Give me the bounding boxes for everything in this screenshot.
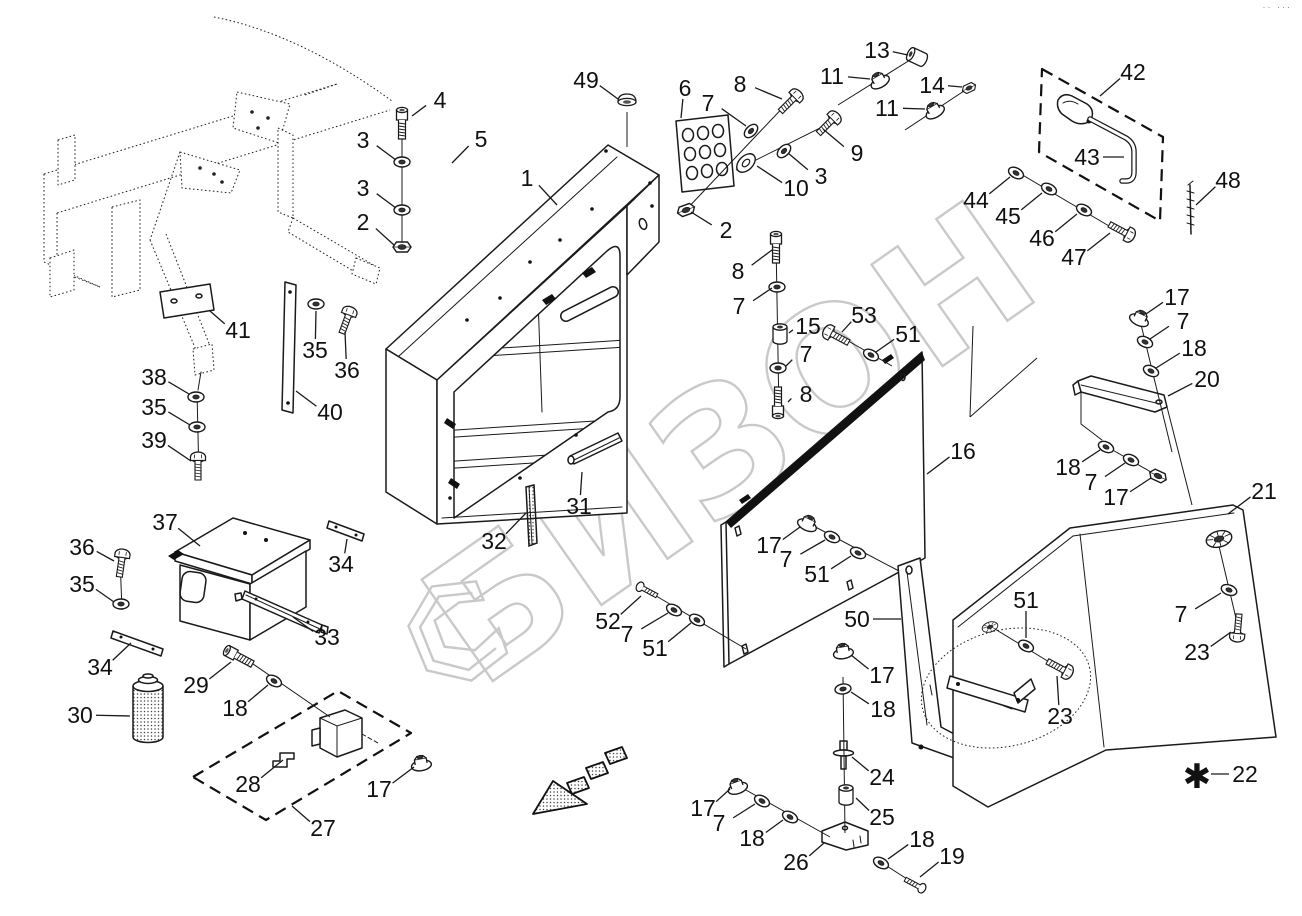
callout-18: 18 [222, 695, 248, 721]
leader-line [668, 623, 691, 642]
callout-53: 53 [851, 302, 877, 328]
leader-line [412, 105, 426, 116]
callout-7: 7 [702, 90, 715, 116]
leader-line [716, 789, 730, 802]
callout-21: 21 [1251, 478, 1277, 504]
leader-line [1150, 326, 1169, 339]
callout-7: 7 [780, 546, 793, 572]
flange-nut-icon [866, 68, 891, 91]
callout-22: 22 [1232, 761, 1258, 787]
leader-line [893, 52, 908, 55]
callout-8: 8 [734, 71, 747, 97]
callout-40: 40 [317, 399, 343, 425]
leader-line [452, 146, 469, 163]
leader-line [1168, 383, 1192, 396]
sealant-cartridge [133, 674, 163, 743]
washer-icon [775, 142, 793, 160]
callout-36: 36 [334, 357, 360, 383]
flange-nut-icon [1128, 307, 1153, 329]
leader-line [315, 311, 316, 339]
bolt-icon [771, 231, 782, 263]
callout-13: 13 [864, 37, 890, 63]
callout-26: 26 [783, 849, 809, 875]
spacer-icon [905, 46, 929, 67]
callout-17: 17 [366, 776, 392, 802]
callout-51: 51 [1013, 587, 1039, 613]
screw-icon [191, 452, 206, 480]
footnote-star: ✱ [1183, 757, 1212, 797]
washer-icon [265, 673, 284, 689]
callout-11: 11 [820, 63, 844, 89]
leader-line [1087, 233, 1110, 251]
washer-icon [394, 205, 410, 215]
callout-30: 30 [67, 702, 93, 728]
leader-line [927, 457, 950, 474]
callout-2: 2 [720, 217, 733, 243]
nut-icon [1148, 468, 1169, 485]
leader-line [600, 86, 618, 99]
callout-41: 41 [225, 317, 251, 343]
callout-8: 8 [732, 258, 745, 284]
washer-icon [1097, 439, 1116, 455]
callout-7: 7 [1085, 469, 1098, 495]
leader-line [852, 757, 869, 771]
screw-icon [112, 548, 131, 578]
callout-7: 7 [621, 621, 634, 647]
callout-33: 33 [314, 624, 340, 650]
washer-icon [770, 363, 786, 373]
bolt-icon [397, 107, 408, 139]
screw-sm-icon [903, 875, 928, 894]
washer-icon [113, 599, 129, 609]
callout-2: 2 [357, 209, 370, 235]
leader-line [168, 445, 191, 461]
callout-20: 20 [1194, 366, 1220, 392]
callout-35: 35 [302, 337, 328, 363]
callout-23: 23 [1047, 703, 1073, 729]
leader-line [903, 108, 925, 109]
parts-diagram: БИЗОН [0, 0, 1302, 916]
wrap-panel [909, 505, 1276, 807]
callout-1: 1 [521, 165, 534, 191]
upper-bracket [1073, 376, 1167, 440]
leader-line [989, 177, 1010, 194]
washer-icon [834, 683, 851, 695]
leader-line [809, 843, 824, 856]
leader-line [1082, 450, 1100, 462]
leader-line [851, 692, 869, 704]
callout-5: 5 [475, 126, 488, 152]
callout-32: 32 [481, 528, 507, 554]
parts-diagram-page: БИЗОН [0, 0, 1302, 916]
leader-line [261, 760, 283, 778]
washer-icon [872, 855, 891, 871]
callout-18: 18 [909, 826, 935, 852]
leader-line [752, 250, 772, 265]
leader-line [823, 129, 844, 147]
screw-icon [335, 304, 359, 335]
callout-8: 8 [800, 381, 813, 407]
callout-6: 6 [679, 75, 692, 101]
control-box [386, 145, 659, 524]
spacer-icon [773, 324, 787, 344]
callout-50: 50 [844, 606, 870, 632]
leader-line [1196, 187, 1215, 205]
leader-line [856, 798, 869, 811]
leader-line [377, 146, 396, 160]
callout-7: 7 [1175, 601, 1188, 627]
callout-25: 25 [869, 804, 895, 830]
washer-icon [1136, 334, 1155, 350]
callout-3: 3 [357, 175, 370, 201]
callout-18: 18 [739, 825, 765, 851]
callout-46: 46 [1029, 225, 1055, 251]
leader-line [96, 589, 114, 602]
washer-icon [188, 392, 204, 402]
flange-nut-icon [921, 98, 946, 121]
callout-49: 49 [573, 67, 599, 93]
callout-7: 7 [733, 293, 746, 319]
callout-24: 24 [869, 764, 895, 790]
callout-23: 23 [1184, 639, 1210, 665]
leader-line [96, 715, 130, 716]
tractor-frame [44, 17, 392, 375]
screw-icon [1106, 218, 1138, 244]
callout-39: 39 [141, 427, 167, 453]
callout-7: 7 [1177, 308, 1190, 334]
callout-27: 27 [310, 815, 336, 841]
washer-icon [769, 282, 785, 292]
relay-module [273, 710, 378, 767]
nut-icon [961, 81, 977, 94]
callout-18: 18 [1055, 454, 1081, 480]
retaining-rod [1187, 181, 1194, 234]
callout-11: 11 [875, 95, 899, 121]
callout-16: 16 [950, 438, 976, 464]
leader-line [376, 229, 394, 245]
callout-38: 38 [141, 364, 167, 390]
leader-line [393, 767, 414, 783]
latch-kit-boundary-box [1039, 69, 1163, 221]
callout-35: 35 [69, 571, 95, 597]
battery-box [168, 518, 310, 640]
leader-line [691, 212, 712, 225]
leader-line [1156, 353, 1180, 368]
spacer-icon [839, 785, 853, 805]
flange-nut-icon [832, 642, 854, 661]
callout-29: 29 [183, 672, 209, 698]
washer-icon [1075, 202, 1094, 218]
leader-line [292, 806, 310, 822]
flat-bar [282, 282, 296, 413]
leader-line [1146, 302, 1163, 314]
callout-52: 52 [595, 608, 621, 634]
screw-icon [775, 86, 805, 116]
bolt-icon [773, 387, 784, 419]
callout-7: 7 [800, 341, 813, 367]
leader-line [296, 391, 316, 406]
callout-3: 3 [357, 127, 370, 153]
callout-18: 18 [1181, 335, 1207, 361]
leader-line [345, 332, 346, 359]
callout-48: 48 [1215, 167, 1241, 193]
callout-17: 17 [756, 532, 782, 558]
washer-icon [308, 299, 324, 309]
leader-line [766, 820, 783, 832]
callout-17: 17 [869, 662, 895, 688]
callout-43: 43 [1074, 144, 1100, 170]
leader-line [113, 643, 131, 660]
callout-10: 10 [783, 175, 809, 201]
callout-9: 9 [851, 140, 864, 166]
callout-45: 45 [995, 203, 1021, 229]
callout-35: 35 [141, 394, 167, 420]
leader-line [1100, 78, 1120, 96]
flange-nut-icon [410, 754, 432, 773]
callout-44: 44 [963, 187, 989, 213]
direction-arrow [533, 747, 627, 814]
leader-line [755, 88, 782, 99]
washer-icon [1142, 363, 1161, 379]
callout-14: 14 [919, 72, 945, 98]
perforated-plate [676, 115, 734, 192]
washer-icon [394, 157, 410, 167]
leader-line [1105, 463, 1125, 477]
callout-7: 7 [713, 810, 726, 836]
callout-47: 47 [1061, 244, 1087, 270]
nut-icon [676, 202, 696, 218]
leader-line [757, 166, 782, 183]
callout-3: 3 [815, 163, 828, 189]
callout-28: 28 [235, 771, 261, 797]
mount-plate [160, 284, 214, 390]
washer-lg-icon [733, 150, 758, 175]
callout-17: 17 [1103, 484, 1129, 510]
leader-line [1130, 478, 1151, 492]
washer-icon [1122, 452, 1141, 468]
leader-line [97, 551, 114, 561]
washer-icon [688, 612, 707, 628]
leader-line [210, 311, 225, 324]
callout-36: 36 [69, 534, 95, 560]
latch-handle [1058, 95, 1093, 124]
leader-line [1055, 214, 1077, 232]
leader-line [888, 845, 908, 859]
callout-42: 42 [1120, 59, 1146, 85]
corner-mark: ·· ··· [1263, 2, 1293, 12]
callout-34: 34 [87, 654, 113, 680]
callout-17: 17 [1164, 284, 1190, 310]
nut-icon [393, 242, 411, 252]
leader-line [248, 685, 268, 702]
washer-icon [1007, 165, 1026, 181]
leader-line [848, 77, 870, 79]
callout-31: 31 [566, 493, 592, 519]
leader-line [733, 804, 755, 818]
callout-51: 51 [804, 561, 830, 587]
leader-line [788, 153, 808, 170]
flange-nut-icon [725, 775, 749, 796]
leader-line [168, 412, 190, 425]
callout-51: 51 [642, 635, 668, 661]
leader-line [948, 86, 962, 87]
callout-19: 19 [939, 843, 965, 869]
leader-line [168, 382, 189, 394]
washer-icon [189, 422, 205, 432]
callout-51: 51 [895, 321, 921, 347]
callout-15: 15 [795, 313, 821, 339]
plug-icon [618, 94, 636, 106]
leader-line [681, 99, 683, 118]
leader-line [209, 662, 231, 679]
callout-4: 4 [434, 87, 447, 113]
callout-34: 34 [328, 551, 354, 577]
leader-line [1021, 193, 1042, 210]
callout-18: 18 [870, 696, 896, 722]
leader-line [920, 862, 939, 877]
leader-line [377, 194, 396, 208]
leader-line [851, 655, 869, 669]
callout-37: 37 [152, 509, 178, 535]
